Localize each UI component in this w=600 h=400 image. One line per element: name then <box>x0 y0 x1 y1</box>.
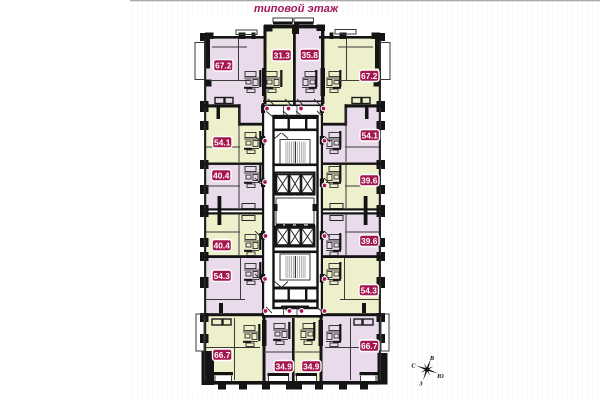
svg-text:66.7: 66.7 <box>214 350 231 360</box>
svg-text:54.1: 54.1 <box>214 137 231 147</box>
svg-text:типовой этаж: типовой этаж <box>254 3 339 15</box>
svg-text:54.1: 54.1 <box>362 130 379 140</box>
svg-text:67.2: 67.2 <box>361 71 378 81</box>
svg-text:67.2: 67.2 <box>215 60 232 70</box>
svg-text:40.4: 40.4 <box>213 170 230 180</box>
svg-text:Ю: Ю <box>436 373 444 380</box>
svg-text:31.3: 31.3 <box>274 50 291 60</box>
svg-text:66.7: 66.7 <box>361 341 378 351</box>
svg-text:40.4: 40.4 <box>214 240 231 250</box>
svg-text:В: В <box>429 355 434 362</box>
svg-text:34.9: 34.9 <box>303 361 320 371</box>
svg-text:54.3: 54.3 <box>214 271 231 281</box>
svg-text:54.3: 54.3 <box>361 285 378 295</box>
svg-text:35.8: 35.8 <box>302 50 319 60</box>
svg-text:39.6: 39.6 <box>361 236 378 246</box>
svg-text:34.9: 34.9 <box>276 361 293 371</box>
svg-text:39.6: 39.6 <box>361 175 378 185</box>
